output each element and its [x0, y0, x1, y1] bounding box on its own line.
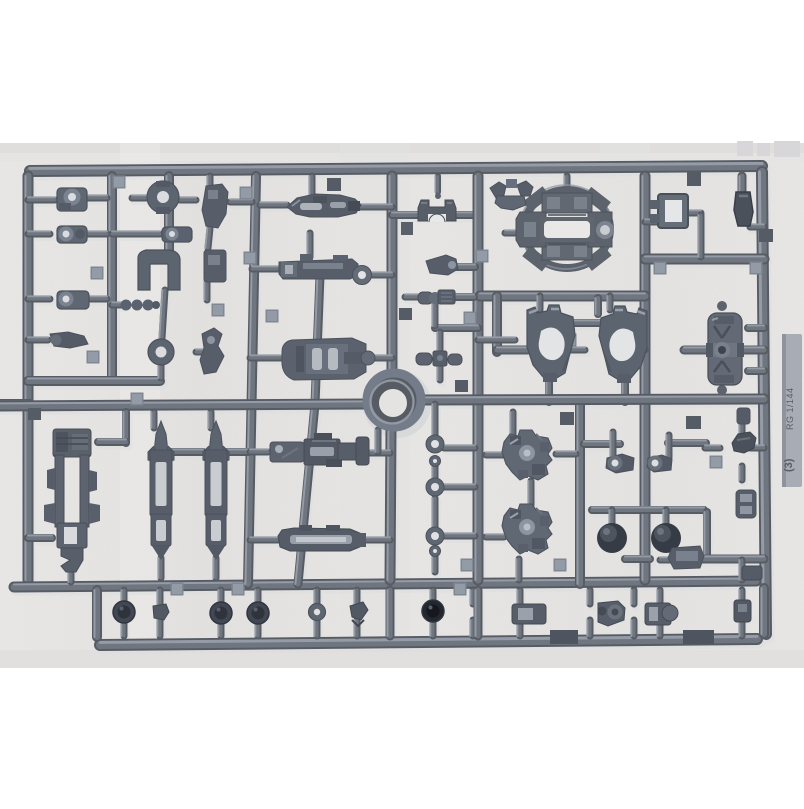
svg-text:(3): (3): [783, 458, 795, 472]
svg-text:RG 1/144: RG 1/144: [785, 387, 795, 430]
